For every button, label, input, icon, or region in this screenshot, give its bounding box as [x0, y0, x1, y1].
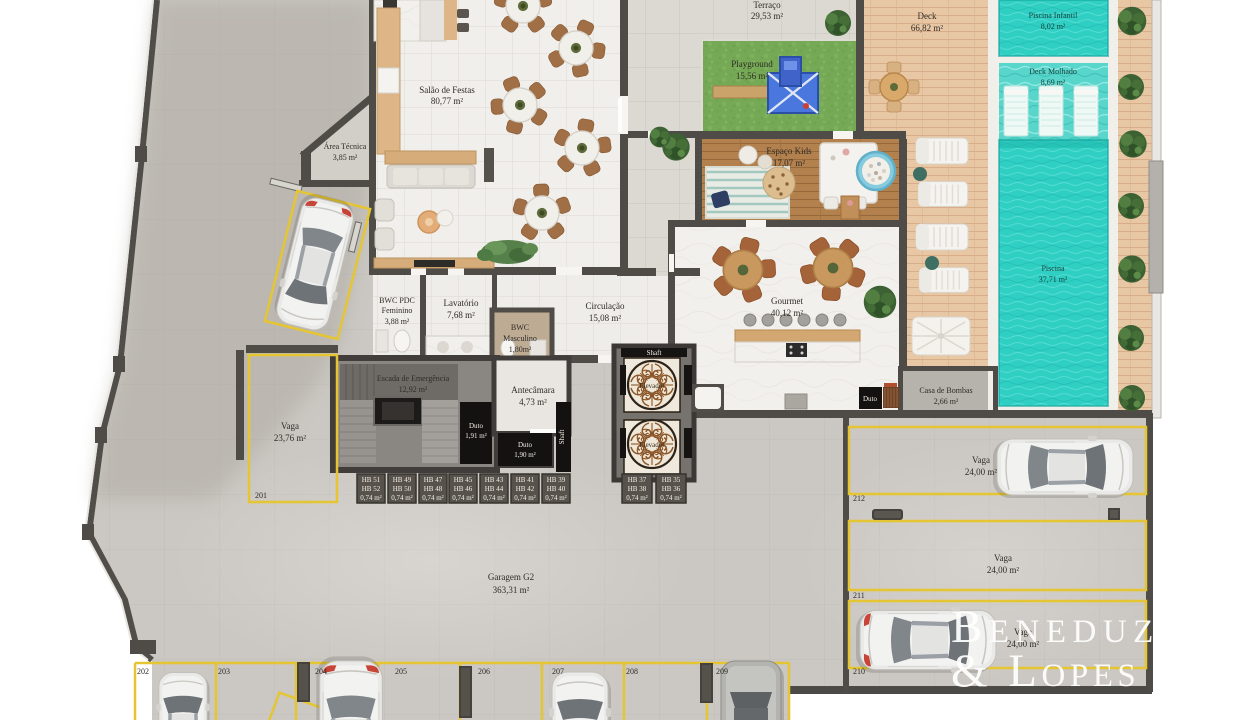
svg-text:0,74 m²: 0,74 m²: [626, 494, 648, 502]
svg-text:Piscina Infantil: Piscina Infantil: [1029, 11, 1078, 20]
svg-text:40,12 m²: 40,12 m²: [771, 308, 804, 318]
svg-text:207: 207: [552, 667, 564, 676]
svg-text:HB 36: HB 36: [662, 485, 681, 493]
svg-text:Duto: Duto: [863, 395, 878, 403]
svg-text:HB 52: HB 52: [362, 485, 381, 493]
svg-text:Piscina: Piscina: [1041, 264, 1065, 273]
svg-text:HB 45: HB 45: [454, 476, 473, 484]
svg-text:Antecâmara: Antecâmara: [511, 385, 554, 395]
svg-text:204: 204: [315, 667, 327, 676]
svg-text:209: 209: [716, 667, 728, 676]
svg-text:Casa de Bombas: Casa de Bombas: [919, 386, 972, 395]
svg-text:HB 37: HB 37: [628, 476, 647, 484]
svg-text:Gourmet: Gourmet: [771, 296, 803, 306]
svg-text:Shaft: Shaft: [558, 430, 566, 445]
svg-text:4,73 m²: 4,73 m²: [519, 397, 547, 407]
svg-text:BWC: BWC: [511, 323, 529, 332]
svg-text:8,69 m²: 8,69 m²: [1041, 78, 1066, 87]
svg-text:17,07 m²: 17,07 m²: [773, 158, 806, 168]
svg-text:24,00 m²: 24,00 m²: [987, 565, 1020, 575]
svg-text:363,31 m²: 363,31 m²: [493, 585, 530, 595]
svg-text:0,74 m²: 0,74 m²: [660, 494, 682, 502]
svg-text:Feminino: Feminino: [382, 306, 413, 315]
svg-text:Circulação: Circulação: [586, 301, 625, 311]
svg-text:Garagem G2: Garagem G2: [488, 572, 534, 582]
svg-text:210: 210: [853, 667, 865, 676]
svg-text:Terraço: Terraço: [753, 0, 781, 10]
svg-text:Elevador: Elevador: [639, 382, 665, 390]
svg-text:Vaga: Vaga: [281, 421, 299, 431]
svg-text:0,74 m²: 0,74 m²: [360, 494, 382, 502]
svg-text:0,74 m²: 0,74 m²: [483, 494, 505, 502]
svg-text:202: 202: [137, 667, 149, 676]
svg-text:Elevador: Elevador: [639, 441, 665, 449]
svg-text:HB 50: HB 50: [393, 485, 412, 493]
svg-text:7,68 m²: 7,68 m²: [447, 310, 475, 320]
svg-text:0,74 m²: 0,74 m²: [545, 494, 567, 502]
svg-text:1,80m²: 1,80m²: [509, 345, 532, 354]
svg-text:203: 203: [218, 667, 230, 676]
svg-text:Salão de Festas: Salão de Festas: [419, 85, 475, 95]
svg-text:3,85 m²: 3,85 m²: [333, 153, 358, 162]
svg-text:12,92 m²: 12,92 m²: [399, 385, 428, 394]
svg-text:Lavatório: Lavatório: [444, 298, 479, 308]
svg-text:HB 42: HB 42: [516, 485, 535, 493]
svg-text:Área Técnica: Área Técnica: [324, 141, 367, 151]
svg-text:BWC PDC: BWC PDC: [379, 296, 415, 305]
svg-text:66,82 m²: 66,82 m²: [911, 23, 944, 33]
svg-text:HB 43: HB 43: [485, 476, 504, 484]
svg-text:HB 38: HB 38: [628, 485, 647, 493]
svg-text:205: 205: [395, 667, 407, 676]
svg-text:37,71 m²: 37,71 m²: [1039, 275, 1068, 284]
svg-text:Vaga: Vaga: [972, 455, 990, 465]
svg-text:3,88 m²: 3,88 m²: [385, 317, 410, 326]
svg-text:15,56 m²: 15,56 m²: [736, 71, 769, 81]
svg-text:80,77 m²: 80,77 m²: [431, 96, 464, 106]
svg-text:211: 211: [853, 591, 865, 600]
svg-text:15,08 m²: 15,08 m²: [589, 313, 622, 323]
svg-text:208: 208: [626, 667, 638, 676]
svg-text:0,74 m²: 0,74 m²: [422, 494, 444, 502]
svg-text:23,76 m²: 23,76 m²: [274, 433, 307, 443]
svg-text:1,91 m²: 1,91 m²: [465, 432, 487, 440]
svg-text:HB 39: HB 39: [547, 476, 566, 484]
svg-text:8,02 m²: 8,02 m²: [1041, 22, 1066, 31]
svg-text:0,74 m²: 0,74 m²: [452, 494, 474, 502]
svg-text:Shaft: Shaft: [647, 349, 662, 357]
svg-text:Vaga: Vaga: [994, 553, 1012, 563]
svg-text:Deck Molhado: Deck Molhado: [1029, 67, 1077, 76]
svg-text:HB 41: HB 41: [516, 476, 535, 484]
svg-text:29,53 m²: 29,53 m²: [751, 11, 784, 21]
svg-text:Duto: Duto: [518, 441, 533, 449]
svg-text:HB 51: HB 51: [362, 476, 381, 484]
svg-text:HB 48: HB 48: [424, 485, 443, 493]
svg-text:HB 49: HB 49: [393, 476, 412, 484]
svg-text:Espaço Kids: Espaço Kids: [766, 146, 812, 156]
svg-text:2,66 m²: 2,66 m²: [934, 397, 959, 406]
svg-text:201: 201: [255, 491, 267, 500]
svg-text:Masculino: Masculino: [503, 334, 537, 343]
svg-text:0,74 m²: 0,74 m²: [391, 494, 413, 502]
svg-text:Deck: Deck: [918, 11, 937, 21]
svg-text:206: 206: [478, 667, 490, 676]
svg-text:24,00 m²: 24,00 m²: [965, 467, 998, 477]
svg-text:Escada de Emergência: Escada de Emergência: [377, 374, 450, 383]
svg-text:HB 47: HB 47: [424, 476, 443, 484]
svg-text:Playground: Playground: [731, 59, 773, 69]
svg-text:HB 44: HB 44: [485, 485, 504, 493]
svg-text:HB 40: HB 40: [547, 485, 566, 493]
svg-text:1,90 m²: 1,90 m²: [514, 451, 536, 459]
svg-text:212: 212: [853, 494, 865, 503]
svg-text:HB 46: HB 46: [454, 485, 473, 493]
svg-text:& Lopes: & Lopes: [951, 645, 1140, 697]
svg-text:HB 35: HB 35: [662, 476, 681, 484]
svg-text:0,74 m²: 0,74 m²: [514, 494, 536, 502]
svg-text:Duto: Duto: [469, 422, 484, 430]
